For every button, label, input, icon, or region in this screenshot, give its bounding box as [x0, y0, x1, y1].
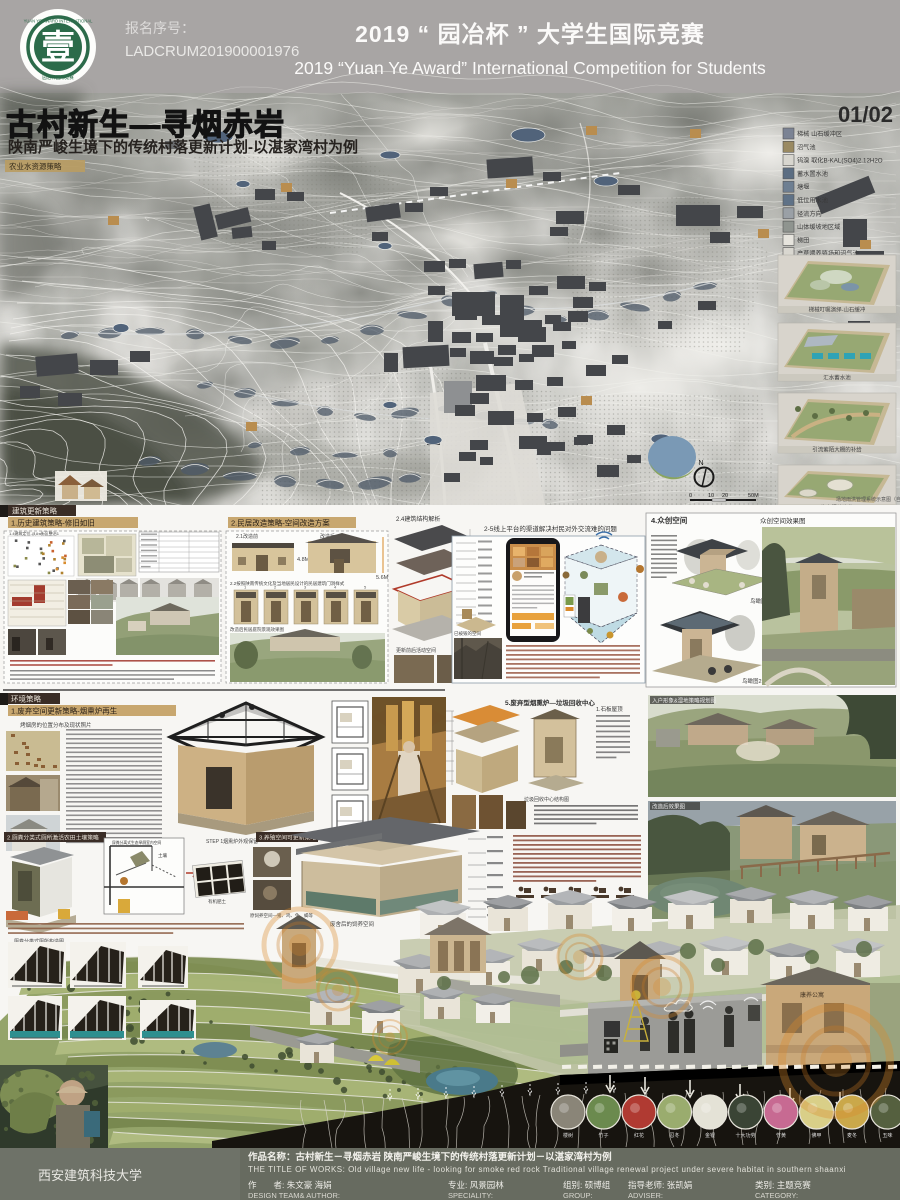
svg-text:改造后效果图: 改造后效果图 — [652, 803, 686, 811]
svg-text:康养公寓: 康养公寓 — [800, 991, 824, 999]
svg-text:场地雨洪管理系统示意图（自绘）: 场地雨洪管理系统示意图（自绘） — [836, 496, 900, 503]
svg-text:蓄水置水池: 蓄水置水池 — [797, 170, 828, 178]
svg-text:YUAN YE AWARD INTERNATIONAL: YUAN YE AWARD INTERNATIONAL — [24, 19, 94, 24]
svg-text:已被毁的空间: 已被毁的空间 — [454, 630, 481, 637]
svg-text:10: 10 — [708, 493, 714, 499]
svg-text:2.民居改造策略-空间改造方案: 2.民居改造策略-空间改造方案 — [231, 518, 330, 528]
svg-text:THE TITLE OF WORKS: Old villag: THE TITLE OF WORKS: Old village new life… — [248, 1165, 846, 1174]
svg-text:鸟瞰图2: 鸟瞰图2 — [742, 677, 762, 685]
svg-text:环境策略: 环境策略 — [11, 694, 41, 704]
svg-text:梯田: 梯田 — [797, 236, 809, 244]
svg-text:类别: 主题竞赛: 类别: 主题竞赛 — [755, 1180, 811, 1190]
svg-text:2019 “Yuan Ye Award” Internati: 2019 “Yuan Ye Award” International Compe… — [294, 58, 766, 78]
svg-text:塘堰: 塘堰 — [797, 183, 809, 191]
svg-text:作 者: 朱文豪 海娟: 作 者: 朱文豪 海娟 — [248, 1180, 332, 1190]
svg-text:4.众创空间: 4.众创空间 — [651, 515, 687, 525]
svg-text:CATEGORY:: CATEGORY: — [755, 1191, 798, 1200]
svg-text:4.8M: 4.8M — [297, 557, 310, 563]
svg-text:GROUP:: GROUP: — [563, 1191, 593, 1200]
svg-text:1.石板屋顶: 1.石板屋顶 — [596, 705, 623, 713]
svg-text:2.4建筑结构解析: 2.4建筑结构解析 — [396, 515, 440, 523]
svg-text:报名序号：: 报名序号： — [125, 20, 195, 36]
svg-text:2.厕粪分类式厕所激活农田土壤策略: 2.厕粪分类式厕所激活农田土壤策略 — [7, 834, 99, 842]
svg-text:01/02: 01/02 — [838, 102, 893, 127]
svg-text:STEP 1烟熏炉外观保留: STEP 1烟熏炉外观保留 — [206, 838, 258, 845]
svg-text:引流紫陌大棚的补给: 引流紫陌大棚的补给 — [812, 446, 862, 454]
svg-text:竹黄: 竹黄 — [776, 1132, 786, 1139]
svg-text:1.历史建筑策略-修旧如旧: 1.历史建筑策略-修旧如旧 — [11, 518, 95, 528]
svg-text:土壤: 土壤 — [158, 852, 167, 859]
svg-text:沼气池: 沼气池 — [797, 143, 816, 151]
svg-text:竹子: 竹子 — [598, 1132, 608, 1139]
svg-text:1.废弃空间更新策略-烟熏炉再生: 1.废弃空间更新策略-烟熏炉再生 — [11, 706, 118, 716]
svg-text:垃圾回收中心结构图: 垃圾回收中心结构图 — [524, 796, 569, 803]
svg-text:DESIGN TEAM& AUTHOR:: DESIGN TEAM& AUTHOR: — [248, 1191, 340, 1200]
svg-text:楼树: 楼树 — [563, 1132, 573, 1139]
svg-text:建筑更新策略: 建筑更新策略 — [12, 506, 57, 516]
svg-text:SPECIALITY:: SPECIALITY: — [448, 1191, 493, 1200]
svg-text:众创空间效果图: 众创空间效果图 — [760, 516, 806, 525]
svg-text:农业水资源策略: 农业水资源策略 — [9, 161, 62, 171]
svg-text:径流方向: 径流方向 — [797, 210, 822, 218]
svg-text:N: N — [698, 460, 703, 467]
svg-text:钨溴 取化B-KAL(SO4)2.12H2O: 钨溴 取化B-KAL(SO4)2.12H2O — [797, 157, 883, 165]
svg-text:佛甲: 佛甲 — [811, 1132, 821, 1139]
svg-text:5.6M: 5.6M — [376, 575, 389, 581]
svg-text:2.1改造前: 2.1改造前 — [236, 533, 258, 540]
svg-text:汇水蓄水池: 汇水蓄水池 — [823, 374, 851, 382]
svg-text:山体缓坡地区域: 山体缓坡地区域 — [797, 223, 840, 231]
svg-text:古村新生—寻烟赤岩: 古村新生—寻烟赤岩 — [6, 109, 285, 142]
svg-text:LADCRUM201900001976: LADCRUM201900001976 — [125, 43, 299, 60]
svg-text:园冶杯国际竞赛: 园冶杯国际竞赛 — [42, 74, 74, 81]
svg-text:入户形象&湿地策略规划图: 入户形象&湿地策略规划图 — [652, 697, 717, 705]
svg-text:红花: 红花 — [634, 1132, 644, 1139]
svg-text:陕南严峻生境下的传统村落更新计划-以湛家湾村为例: 陕南严峻生境下的传统村落更新计划-以湛家湾村为例 — [8, 138, 358, 156]
svg-text:2-5线上平台的渠道解决村民对外交流难的问题: 2-5线上平台的渠道解决村民对外交流难的问题 — [484, 524, 617, 533]
svg-text:壹: 壹 — [41, 29, 75, 67]
svg-text:西安建筑科技大学: 西安建筑科技大学 — [38, 1168, 142, 1183]
svg-text:2019 “ 园冶杯 ” 大学生国际竞赛: 2019 “ 园冶杯 ” 大学生国际竞赛 — [355, 21, 705, 47]
svg-text:组别: 硕博组: 组别: 硕博组 — [563, 1180, 611, 1190]
svg-text:专业: 风景园林: 专业: 风景园林 — [448, 1180, 504, 1190]
svg-text:忍冬: 忍冬 — [669, 1132, 679, 1139]
svg-text:50M: 50M — [748, 493, 759, 499]
svg-text:梯械 山石缓冲区: 梯械 山石缓冲区 — [797, 130, 842, 138]
svg-text:低位用水池: 低位用水池 — [797, 197, 828, 205]
svg-text:2.2按照陕南传统文化及当地居民设计的民居建筑门洞样式: 2.2按照陕南传统文化及当地居民设计的民居建筑门洞样式 — [230, 580, 345, 587]
svg-text:ADVISER:: ADVISER: — [628, 1191, 663, 1200]
svg-text:麦冬: 麦冬 — [847, 1132, 857, 1139]
svg-text:1.4建筑定位-从ửa街区整治1: 1.4建筑定位-从ửa街区整治1 — [9, 530, 60, 536]
svg-text:20: 20 — [722, 493, 728, 499]
svg-text:尿粪分离式生态旱厕室内空间: 尿粪分离式生态旱厕室内空间 — [112, 840, 162, 845]
svg-text:改造后民居庭院景观效果图: 改造后民居庭院景观效果图 — [230, 626, 284, 633]
svg-text:0: 0 — [689, 493, 692, 499]
svg-text:十大功劳: 十大功劳 — [735, 1132, 755, 1139]
svg-text:金银: 金银 — [705, 1132, 715, 1139]
svg-text:五味: 五味 — [882, 1132, 892, 1139]
svg-text:梯械叮嘱演绎-山石缓冲: 梯械叮嘱演绎-山石缓冲 — [809, 306, 866, 314]
svg-text:废舍后的饲养空间: 废舍后的饲养空间 — [330, 920, 374, 928]
svg-text:5.废弃型烟熏炉—垃圾回收中心: 5.废弃型烟熏炉—垃圾回收中心 — [505, 698, 595, 707]
svg-text:烤烟房的位置分布及现状照片: 烤烟房的位置分布及现状照片 — [20, 721, 92, 729]
svg-text:有机肥土: 有机肥土 — [208, 898, 226, 905]
svg-text:更新前后活动空间: 更新前后活动空间 — [396, 647, 436, 654]
svg-text:指导老师: 张凯娟: 指导老师: 张凯娟 — [628, 1180, 692, 1190]
svg-text:作品名称：古村新生－寻烟赤岩 陕南严峻生境下的传统村落更新: 作品名称：古村新生－寻烟赤岩 陕南严峻生境下的传统村落更新计划－以湛家湾村为例 — [248, 1151, 612, 1163]
